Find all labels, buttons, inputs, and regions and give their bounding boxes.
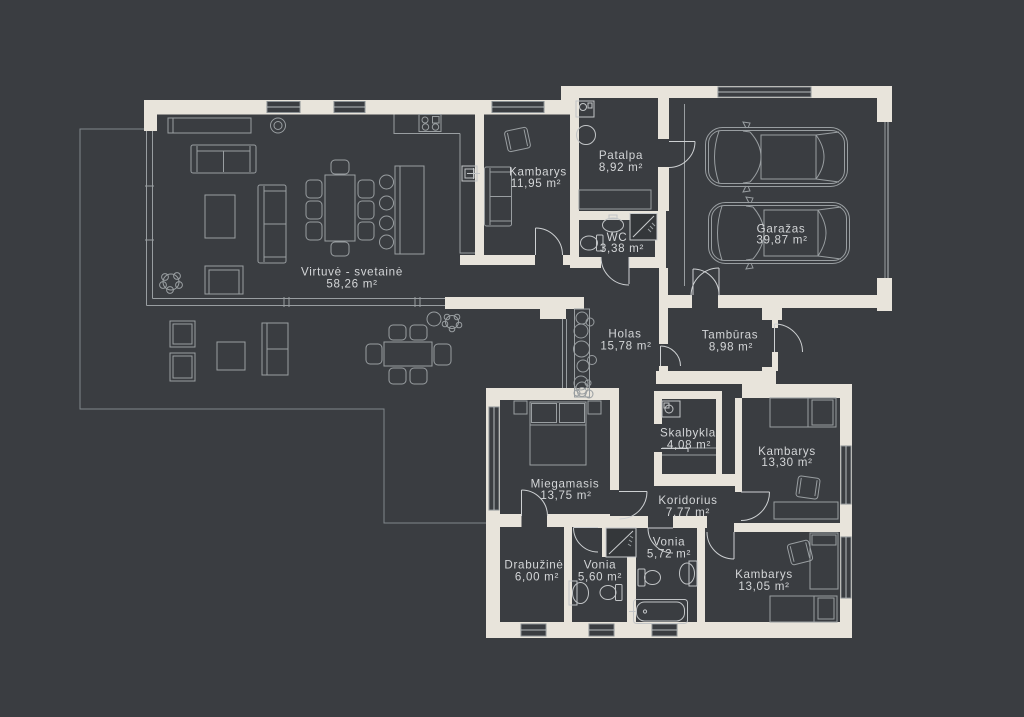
svg-text:58,26 m²: 58,26 m² [326, 278, 377, 291]
svg-text:5,60 m²: 5,60 m² [578, 571, 622, 584]
svg-text:13,75 m²: 13,75 m² [540, 489, 591, 502]
svg-text:6,00 m²: 6,00 m² [515, 571, 559, 584]
svg-text:5,72 m²: 5,72 m² [647, 548, 691, 561]
svg-text:3,38 m²: 3,38 m² [600, 242, 644, 255]
svg-text:8,98 m²: 8,98 m² [709, 341, 753, 354]
svg-text:11,95 m²: 11,95 m² [511, 177, 562, 190]
svg-text:4,08 m²: 4,08 m² [667, 439, 711, 452]
svg-text:13,05 m²: 13,05 m² [738, 580, 789, 593]
svg-text:39,87 m²: 39,87 m² [756, 234, 807, 247]
svg-text:15,78 m²: 15,78 m² [600, 340, 651, 353]
svg-text:13,30 m²: 13,30 m² [761, 456, 812, 469]
svg-text:7,77 m²: 7,77 m² [666, 506, 710, 519]
svg-text:8,92 m²: 8,92 m² [599, 161, 643, 174]
